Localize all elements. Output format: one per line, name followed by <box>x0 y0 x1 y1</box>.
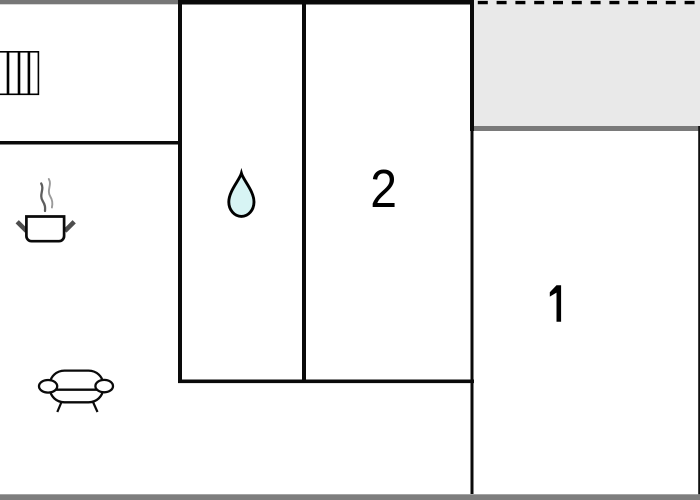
svg-text:2: 2 <box>370 159 397 219</box>
